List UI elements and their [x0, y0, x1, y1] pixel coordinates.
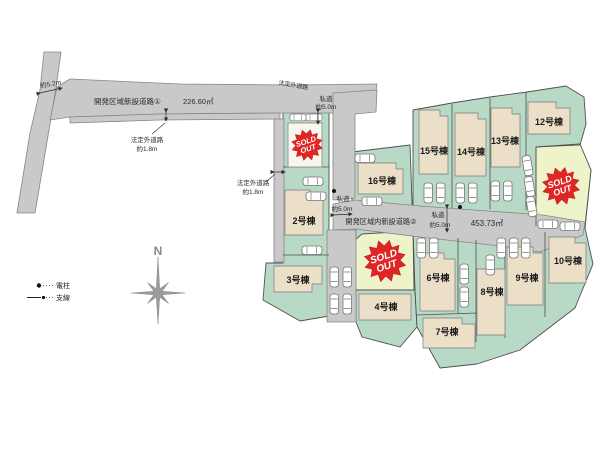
compass-north-label: N: [154, 244, 163, 258]
car-icon: [417, 238, 426, 258]
utility-pole-dot: [332, 189, 336, 193]
legend-pole-label: 電柱: [56, 281, 70, 290]
road-legal-strip-v: [274, 119, 284, 262]
car-icon: [460, 264, 469, 284]
car-icon: [456, 183, 465, 203]
lot-13-label: 13号棟: [491, 135, 520, 146]
car-icon: [522, 238, 531, 258]
lot-14-label: 14号棟: [457, 146, 486, 157]
legal-road-label-2: 法定外道路: [237, 178, 270, 187]
road2-name-label: 開発区域内新設道路②: [345, 217, 416, 226]
private-road-label-mid: 私道: [337, 194, 351, 203]
car-icon: [486, 255, 495, 275]
road1-area-label: 226.60㎡: [183, 97, 214, 106]
legal-width-label-2: 約1.8m: [243, 187, 264, 196]
legal-road-label-1: 法定外道路: [131, 135, 164, 144]
car-icon: [343, 294, 352, 314]
car-icon: [469, 183, 478, 203]
lot-16-label: 16号棟: [368, 175, 397, 186]
car-icon: [330, 267, 339, 287]
car-icon: [330, 294, 339, 314]
compass: N: [131, 244, 185, 324]
lot-9-label: 9号棟: [515, 272, 539, 283]
legal-width-label-1: 約1.8m: [137, 144, 158, 153]
private-road-label-right: 私道: [432, 210, 446, 219]
compass-rose-icon: [131, 257, 185, 324]
lot-3-label: 3号棟: [286, 274, 310, 285]
car-icon: [497, 238, 506, 258]
car-icon: [306, 114, 322, 121]
lot-4-label: 4号棟: [374, 301, 398, 312]
lot-7-label: 7号棟: [435, 326, 459, 337]
car-icon: [460, 287, 469, 307]
legend-wire-label: 支線: [56, 293, 70, 302]
car-icon: [424, 183, 433, 203]
car-icon: [343, 267, 352, 287]
car-icon: [355, 154, 375, 163]
car-icon: [491, 181, 500, 201]
private-road-label-top: 私道: [320, 94, 334, 103]
lot-2-label: 2号棟: [292, 215, 316, 226]
building-15: [419, 110, 448, 174]
lot-10-label: 10号棟: [554, 255, 583, 266]
car-icon: [437, 183, 446, 203]
lot-12-label: 12号棟: [535, 116, 564, 127]
car-icon: [560, 222, 580, 231]
lot-15-label: 15号棟: [420, 145, 449, 156]
car-icon: [303, 177, 323, 186]
car-icon: [290, 114, 306, 121]
private-width-label-top: 約5.0m: [316, 102, 337, 111]
site-plan: SOLD OUT: [0, 0, 600, 450]
legend-pole-icon: [37, 283, 41, 287]
car-icon: [306, 192, 326, 201]
legend-wire-dot: [42, 296, 45, 299]
car-icon: [302, 246, 322, 255]
road-vertical-west: [17, 52, 61, 213]
car-icon: [362, 197, 382, 206]
car-icon: [510, 238, 519, 258]
road2-area-label: 453.73㎡: [471, 219, 503, 228]
car-icon: [430, 238, 439, 258]
private-width-label-mid: 約5.0m: [332, 204, 353, 213]
car-icon: [538, 220, 558, 229]
car-icon: [504, 181, 513, 201]
building-8: [477, 269, 505, 335]
site-plan-canvas: SOLD OUT: [0, 0, 600, 450]
building-14: [455, 113, 486, 176]
legend: 電柱 支線: [27, 281, 70, 302]
lot-6-label: 6号棟: [426, 272, 450, 283]
lot-8-label: 8号棟: [480, 286, 504, 297]
road1-name-label: 開発区域新設道路①: [94, 96, 161, 106]
legal-leader-1: [152, 123, 165, 134]
utility-pole-dot: [458, 205, 462, 209]
